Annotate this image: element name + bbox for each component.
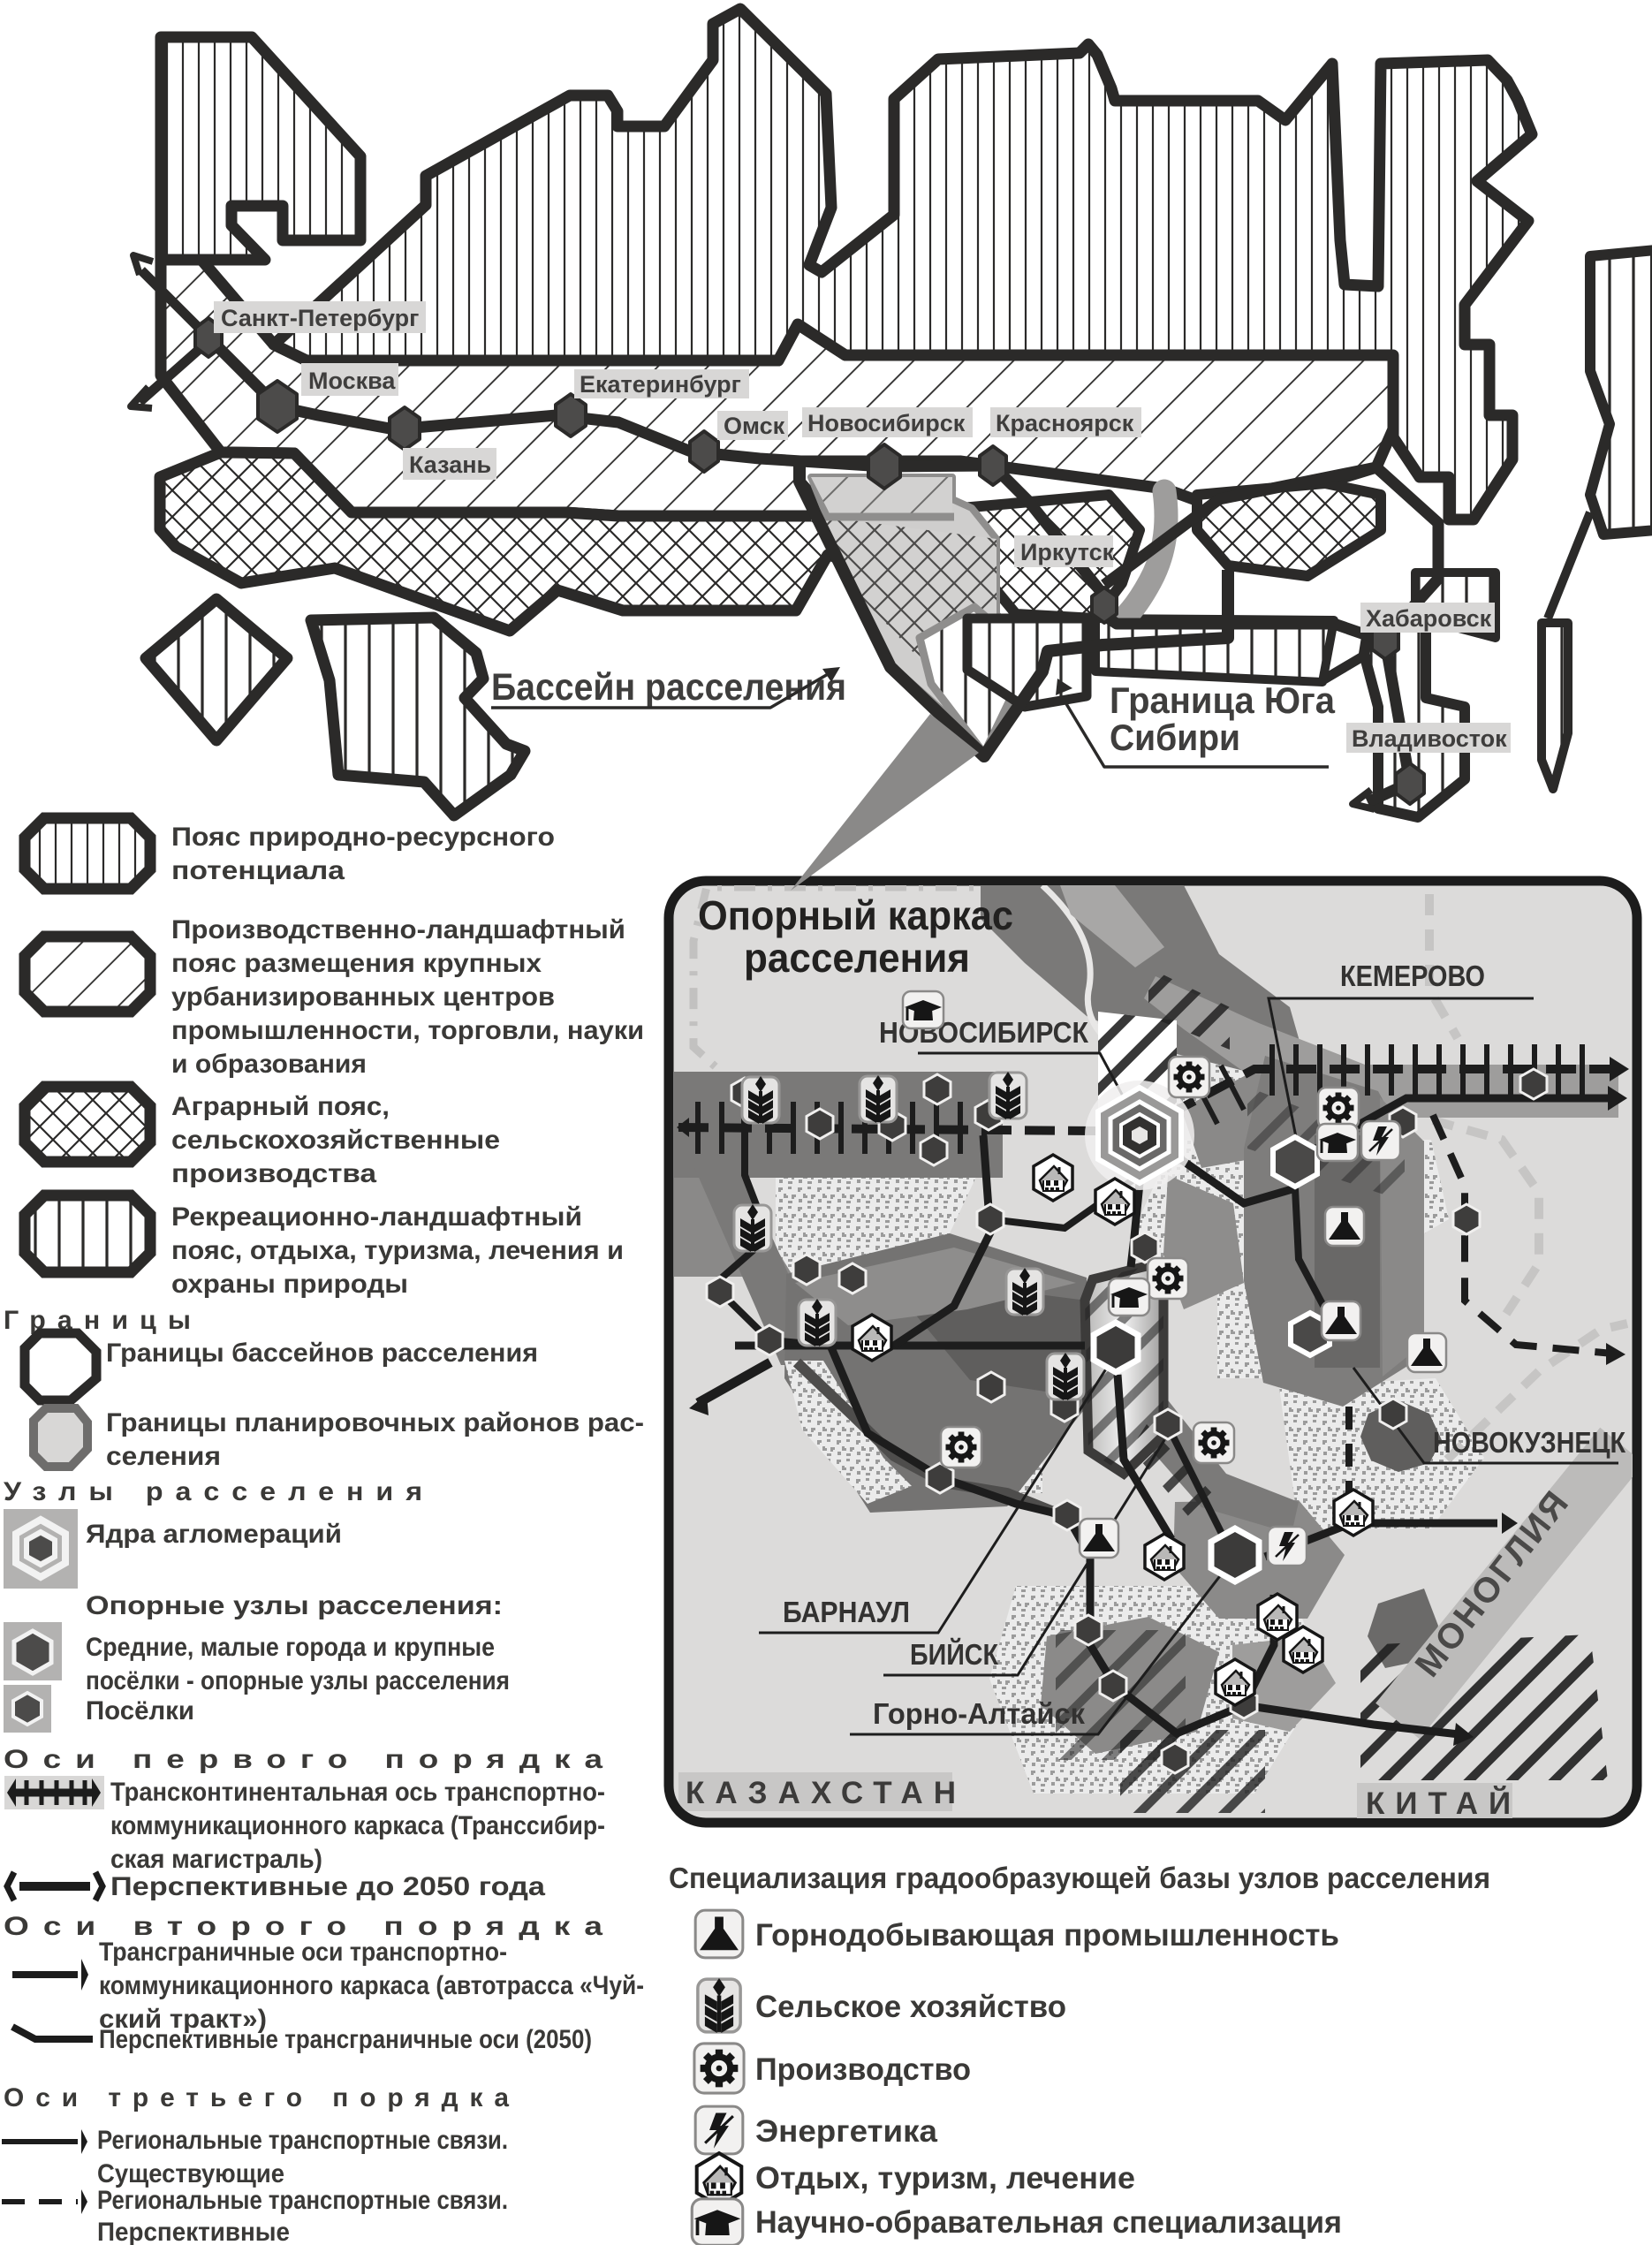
- svg-text:Пояс природно-ресурсного: Пояс природно-ресурсного: [171, 823, 555, 852]
- svg-text:пояс, отдыха, туризма, лечения: пояс, отдыха, туризма, лечения и: [171, 1236, 624, 1265]
- svg-text:ская магистраль): ская магистраль): [110, 1845, 322, 1874]
- svg-text:и образования: и образования: [171, 1050, 367, 1079]
- svg-text:Оси третьего порядка: Оси третьего порядка: [4, 2083, 520, 2112]
- svg-text:Опорный каркас: Опорный каркас: [698, 892, 1013, 938]
- svg-text:Существующие: Существующие: [97, 2159, 284, 2188]
- svg-text:Бассейн расселения: Бассейн расселения: [491, 666, 846, 709]
- svg-text:Перспективные до 2050 года: Перспективные до 2050 года: [110, 1872, 545, 1901]
- svg-text:Региональные транспортные связ: Региональные транспортные связи.: [97, 2186, 508, 2215]
- svg-text:НОВОКУЗНЕЦК: НОВОКУЗНЕЦК: [1433, 1426, 1626, 1459]
- svg-text:Санкт-Петербург: Санкт-Петербург: [221, 305, 419, 331]
- svg-text:КИТАЙ: КИТАЙ: [1366, 1786, 1521, 1821]
- svg-text:Иркутск: Иркутск: [1020, 539, 1115, 565]
- svg-text:Сибири: Сибири: [1110, 717, 1240, 758]
- svg-text:сельскохозяйственные: сельскохозяйственные: [171, 1126, 500, 1155]
- svg-text:Границы: Границы: [4, 1306, 202, 1335]
- svg-text:Трансконтинентальная ось транс: Трансконтинентальная ось транспортно-: [110, 1778, 605, 1807]
- svg-text:Аграрный пояс,: Аграрный пояс,: [171, 1092, 390, 1121]
- svg-text:Специализация градообразующей: Специализация градообразующей базы узлов…: [669, 1862, 1490, 1894]
- svg-text:Отдых, туризм, лечение: Отдых, туризм, лечение: [755, 2161, 1135, 2196]
- svg-text:Опорные узлы расселения:: Опорные узлы расселения:: [86, 1591, 503, 1620]
- svg-text:урбанизированных центров: урбанизированных центров: [171, 982, 555, 1012]
- svg-text:селения: селения: [106, 1442, 221, 1471]
- svg-text:коммуникационного каркаса (авт: коммуникационного каркаса (автотрасса «Ч…: [99, 1971, 644, 2000]
- svg-text:Оси первого порядка: Оси первого порядка: [4, 1745, 617, 1774]
- svg-text:Перспективные трансграничные о: Перспективные трансграничные оси (2050): [99, 2025, 592, 2054]
- svg-text:Научно-обравательная специализ: Научно-обравательная специализация: [755, 2205, 1342, 2240]
- svg-text:Производственно-ландшафтный: Производственно-ландшафтный: [171, 915, 625, 944]
- svg-text:Горнодобывающая промышленность: Горнодобывающая промышленность: [755, 1918, 1339, 1953]
- svg-text:Москва: Москва: [308, 368, 396, 394]
- svg-text:Ядра агломераций: Ядра агломераций: [86, 1520, 342, 1549]
- svg-text:Границы планировочных районов: Границы планировочных районов рас-: [106, 1408, 644, 1437]
- svg-text:расселения: расселения: [744, 935, 970, 981]
- svg-text:КАЗАХСТАН: КАЗАХСТАН: [686, 1776, 966, 1810]
- svg-text:Рекреационно-ландшафтный: Рекреационно-ландшафтный: [171, 1202, 582, 1232]
- svg-text:Красноярск: Красноярск: [996, 410, 1134, 436]
- svg-text:Горно-Алтайск: Горно-Алтайск: [873, 1697, 1085, 1730]
- svg-text:Перспективные: Перспективные: [97, 2218, 290, 2245]
- svg-text:Омск: Омск: [724, 413, 785, 439]
- svg-text:промышленности, торговли, наук: промышленности, торговли, науки: [171, 1016, 644, 1045]
- svg-text:Узлы расселения: Узлы расселения: [4, 1477, 435, 1506]
- svg-text:Новосибирск: Новосибирск: [807, 410, 966, 436]
- svg-text:Производство: Производство: [755, 2052, 971, 2087]
- svg-text:Энергетика: Энергетика: [755, 2114, 938, 2149]
- svg-text:БИЙСК: БИЙСК: [910, 1637, 999, 1671]
- svg-text:БАРНАУЛ: БАРНАУЛ: [783, 1596, 910, 1628]
- svg-text:потенциала: потенциала: [171, 856, 345, 885]
- svg-text:Казань: Казань: [409, 451, 491, 478]
- svg-text:Владивосток: Владивосток: [1352, 725, 1507, 752]
- svg-text:Екатеринбург: Екатеринбург: [580, 371, 741, 398]
- svg-text:Границы бассейнов расселения: Границы бассейнов расселения: [106, 1339, 538, 1368]
- svg-text:КЕМЕРОВО: КЕМЕРОВО: [1340, 959, 1485, 992]
- svg-text:Граница Юга: Граница Юга: [1110, 679, 1336, 721]
- svg-text:Региональные транспортные связ: Региональные транспортные связи.: [97, 2126, 508, 2155]
- svg-text:Хабаровск: Хабаровск: [1366, 605, 1492, 632]
- svg-text:коммуникационного каркаса (Тра: коммуникационного каркаса (Транссибир-: [110, 1811, 605, 1840]
- svg-text:Трансграничные оси транспортно: Трансграничные оси транспортно-: [99, 1938, 507, 1967]
- svg-text:Средние, малые города и крупны: Средние, малые города и крупные: [86, 1633, 495, 1662]
- svg-text:пояс размещения крупных: пояс размещения крупных: [171, 949, 542, 978]
- svg-text:Сельское хозяйство: Сельское хозяйство: [755, 1990, 1066, 2024]
- svg-text:Посёлки: Посёлки: [86, 1696, 194, 1725]
- svg-text:охраны природы: охраны природы: [171, 1270, 408, 1299]
- svg-text:посёлки - опорные узлы расселе: посёлки - опорные узлы расселения: [86, 1666, 510, 1695]
- svg-text:производства: производства: [171, 1159, 376, 1188]
